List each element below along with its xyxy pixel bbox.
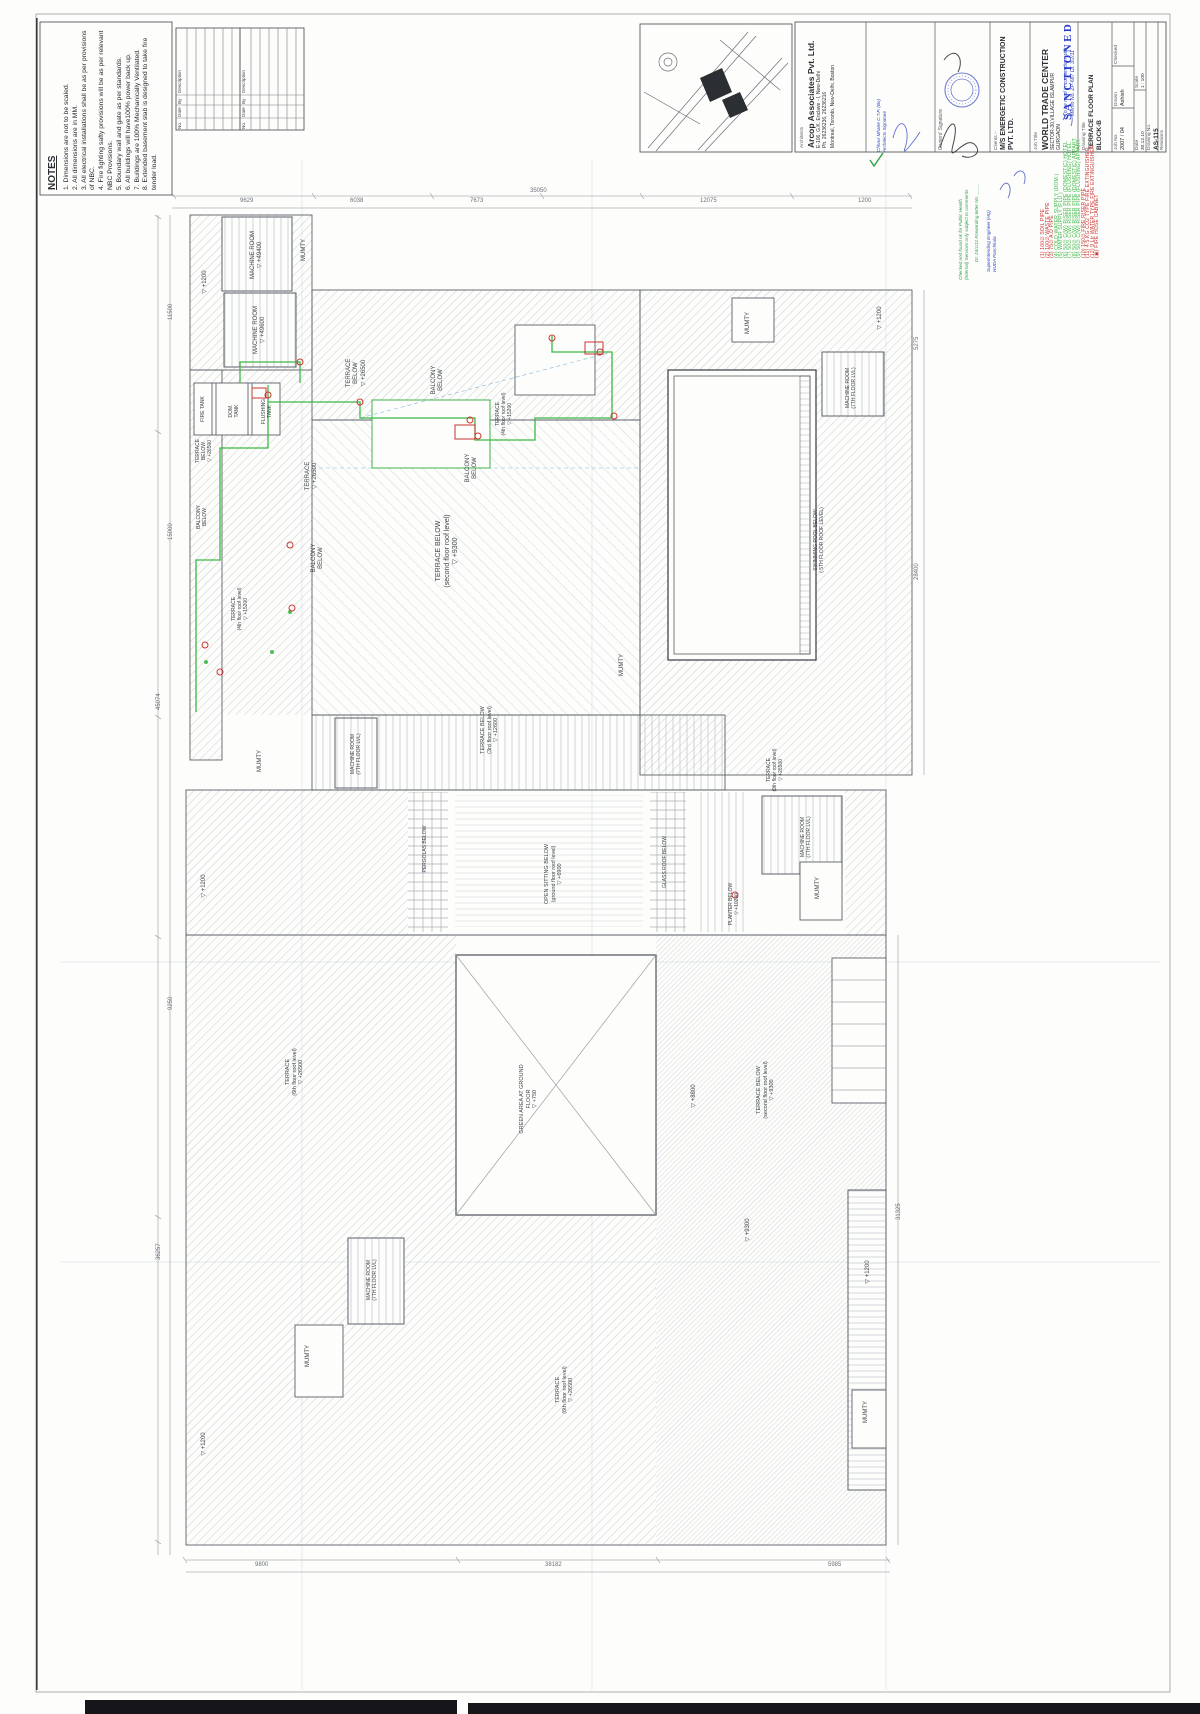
terrace-label: TERRACE(9th floor roof level)▽ +26500 [760, 740, 790, 800]
level-label: ▽ +1200 [196, 866, 214, 906]
terrace-label: TERRACE(6th floor roof level)▽ +26500 [550, 1358, 580, 1422]
date-value: 30.12.10 [1141, 90, 1147, 150]
revision-col-description: Description [177, 30, 187, 93]
note-item: 7. Buildings are 100% Mechanically Venti… [134, 27, 143, 190]
terrace-label: TERRACE(4th floor roof level)▽ +15200 [490, 386, 518, 442]
legend-row: (3) 75∅ A.D PIPE [1049, 148, 1054, 258]
dimension-label: 28400 [914, 563, 920, 580]
terrace-label: TERRACE BELOW(second floor roof level)▽ … [750, 1056, 782, 1124]
terrace-label: TERRACEBELOW▽ +26500 [193, 425, 215, 477]
checked-cell: Checked [1114, 24, 1134, 64]
level-label: ▽ +1200 [196, 260, 216, 304]
dimension-label: 11500 [168, 304, 174, 320]
dom-tank-label: DOM.TANK [221, 388, 247, 434]
terrace-label: TERRACE(6th floor roof level)▽ +26500 [280, 1040, 310, 1104]
clients-block: Clients :- M/S ENERGETIC CONSTRUCTION PV… [994, 26, 1028, 150]
owners-signature-label: Owners' Signature [938, 102, 949, 150]
level-label: ▽ +8800 [686, 1076, 704, 1116]
balcony-label: BALCONYBELOW [462, 446, 482, 490]
client-name-line2: PVT. LTD. [1008, 26, 1016, 150]
balcony-label: BALCONYBELOW [308, 536, 328, 580]
machine-room-label: MACHINE ROOM(7TH FLOOR LVL) [830, 360, 872, 416]
scale-cell: Scale 1 : 100 [1135, 26, 1146, 88]
revision-col-by: By [241, 96, 251, 104]
dimension-label: 15000 [168, 523, 174, 540]
drawn-cell: Drawn Ashish [1114, 66, 1134, 106]
note-item: 4. Fire fighting safty provisions will b… [98, 27, 116, 190]
machine-room-label: MACHINE ROOM(7TH FLOOR LVL) [788, 806, 824, 868]
level-label: ▽ +1200 [196, 1424, 214, 1464]
notes-list: 1. Dimensions are not to be scaled.2. Al… [63, 27, 160, 190]
note-item: 8. Extended basement slab is designed to… [142, 27, 160, 190]
job-no-cell: Job No. 2007 / 04 [1114, 108, 1134, 150]
memo-note: To be read in conjunction withMemo No. Z… [1063, 18, 1077, 116]
terrace-label: TERRACE BELOW(3rd floor roof level)▽ +12… [474, 698, 506, 762]
terrace-label: TERRACE(4th floor roof level)▽ +15200 [226, 580, 254, 638]
mumty-label: MUMTY [860, 1392, 874, 1432]
level-label: ▽ +1200 [860, 1252, 878, 1292]
terrace-label: TERRACE BELOW(second floor roof level)▽ … [430, 512, 466, 590]
dimension-label: 1200 [858, 198, 871, 204]
dimension-label: 45074 [156, 693, 162, 710]
revision-col-no: No. [177, 119, 187, 129]
floor-plan-drawing [0, 0, 1200, 1714]
balcony-label: BALCONYBELOW [193, 496, 211, 538]
superintending-engineer-note: Superintending Engineer (HQ)HUDA Panchku… [986, 172, 998, 272]
dimension-label: 6038 [350, 198, 363, 204]
revisions-label: Revisions [1159, 24, 1167, 150]
dimension-label: 12075 [700, 198, 717, 204]
architects-name: Arcop Associates Pvt. Ltd. [806, 28, 816, 148]
legend-row: (1) 100∅ SOIL PIPE [1040, 148, 1045, 258]
mumty-label: MUMTY [616, 646, 630, 684]
revision-col-date: Date [241, 106, 251, 117]
drawing-title-line1: TERRACE FLOOR PLAN [1088, 40, 1096, 150]
mumty-label: MUMTY [302, 1336, 316, 1376]
dimension-label: 5985 [828, 1562, 841, 1568]
client-name-line1: M/S ENERGETIC CONSTRUCTION [1000, 26, 1008, 150]
drawing-no-cell: Drawing No. AS-115 [1147, 24, 1158, 150]
terrace-label: TERRACE BELOW▽ +26500 [342, 348, 372, 398]
date-cell: Date 30.12.10 [1135, 90, 1146, 150]
machine-room-label: MACHINE ROOM▽ +49600 [232, 300, 288, 360]
revision-col-no: No. [241, 119, 251, 129]
notes-title: NOTES [47, 27, 59, 190]
dimension-label: 9250 [168, 997, 174, 1010]
drawn-value: Ashish [1120, 66, 1127, 106]
dimension-label: 9800 [255, 1562, 268, 1568]
architect-signature-stamp: Chhavi Mhatre C.T.P. (Bo)Architects Sign… [876, 90, 892, 152]
note-item: 2. All dimensions are in MM. [72, 27, 81, 190]
architects-cities: Montreal, Toronto, New-Delhi, Boston [830, 28, 836, 148]
dimension-label: 31325 [896, 1203, 902, 1220]
open-sitting-label: OPEN SITTING BELOW(ground floor roof lev… [538, 840, 570, 908]
sheet-background: NOTES 1. Dimensions are not to be scaled… [0, 0, 1200, 1714]
dimension-label: 7673 [470, 198, 483, 204]
machine-room-label: MACHINE ROOM▽ +49400 [228, 224, 286, 286]
swimming-pool-label: SWIMMING POOL BELOW( 5TH FLOOR ROOF LEVE… [808, 502, 830, 578]
machine-room-label: MACHINE ROOM(7TH FLOOR LVL) [354, 1246, 390, 1314]
revision-col-date: Date [177, 106, 187, 117]
drawing-title-line2: BLOCK-B [1096, 40, 1104, 150]
architects-phone: Ph. 26236236, 26236216 [822, 28, 828, 148]
mumty-label: MUMTY [742, 304, 756, 342]
public-health-note-date: Dt. 24/1/11 Forwarding letter No. ____ [974, 170, 983, 262]
dimension-label: 5275 [914, 337, 920, 350]
legend-row: (7) 50∅ C(W) RISER PIPE (FLUSHING) HOTEL [1067, 148, 1072, 258]
dimension-label: 35050 [530, 188, 547, 194]
dimension-label: 9629 [240, 198, 253, 204]
note-item: 6. All buildings will have100% power bac… [125, 27, 134, 190]
level-label: ▽ +9300 [740, 1210, 758, 1250]
planter-label: PLANTER BELOW▽ +10200 [722, 876, 746, 932]
legend-row: (▣) FIRE HOSE CABINET [1094, 148, 1099, 258]
drawing-title-block: Drawing Title TERRACE FLOOR PLAN BLOCK-B [1082, 40, 1110, 150]
scan-artifact-bar [85, 1700, 457, 1714]
legend-row: (9) 50∅ C(W) RISER PIPE (FLUSHING) APPAR… [1076, 148, 1081, 258]
mumty-label: MUMTY [812, 868, 826, 908]
note-item: 1. Dimensions are not to be scaled. [63, 27, 72, 190]
scale-value: 1 : 100 [1141, 26, 1147, 88]
mumty-label: MUMTY [298, 232, 311, 268]
legend-row: (5) WATER SUPPLY (FLU.) [1058, 148, 1063, 258]
dimension-label: 36257 [156, 1243, 162, 1260]
dimension-label: 38182 [545, 1562, 562, 1568]
scan-artifact-bar [468, 1703, 1200, 1714]
scanned-drawing-sheet: { "meta": { "accent_green": "#3cb945", "… [0, 0, 1200, 1714]
notes-block: NOTES 1. Dimensions are not to be scaled… [44, 24, 172, 193]
revision-col-description: Description [241, 30, 251, 93]
flushing-tank-label: FLUSHINGTANK [256, 388, 278, 435]
level-label: ▽ +1200 [872, 298, 890, 338]
legend-row: (11) 4.5 KG CO2 TYPE FIRE EXTINGUISHER [1085, 148, 1090, 258]
green-area-label: GREEN AREA AT GROUND FLOOR▽ +750 [514, 1060, 544, 1138]
architects-block: Architects Arcop Associates Pvt. Ltd. E-… [800, 28, 860, 148]
revision-col-by: By [177, 96, 187, 104]
balcony-label: BALCONYBELOW [428, 358, 448, 402]
mumty-label: MUMTY [254, 742, 268, 780]
machine-room-label: MACHINE ROOM(7TH FLOOR LVL) [340, 722, 372, 786]
pergolas-label: PERGOLAS BELOW [418, 818, 432, 880]
note-item: 3. All electrical installations shall be… [81, 27, 99, 190]
public-health-note: Checked and found ok for Public Health(I… [958, 168, 971, 280]
job-no-value: 2007 / 04 [1120, 108, 1127, 150]
terrace-label: TERRACE▽ +26500 [300, 452, 324, 500]
glass-roof-label: GLASS ROOF BELOW [658, 830, 672, 894]
job-title: WORLD TRADE CENTER [1040, 26, 1050, 150]
note-item: 5. Boundary wall and gate as per standar… [116, 27, 125, 190]
